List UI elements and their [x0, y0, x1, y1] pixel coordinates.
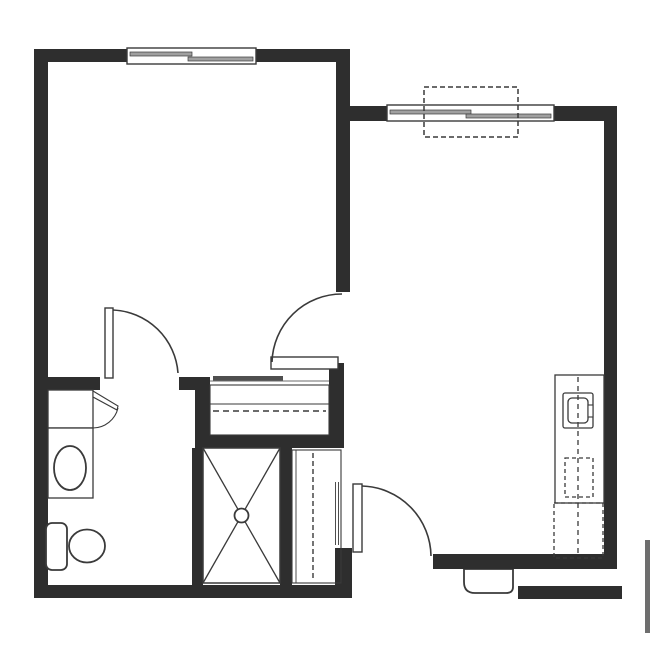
wall-bedroom-top-right	[256, 49, 350, 62]
wall-left	[34, 49, 48, 598]
wall-bottom-left	[34, 585, 347, 598]
wall-shower-right	[280, 448, 292, 585]
living-window-pane-left	[390, 110, 471, 114]
bedroom-window-pane-left	[130, 52, 192, 56]
bathroom-door-leaf	[105, 308, 113, 378]
shower-drain	[235, 509, 249, 523]
floor-plan-svg	[0, 0, 650, 650]
entry-door-swing-arc	[362, 486, 431, 556]
bathroom-door-swing-arc	[113, 310, 178, 373]
linen-cabinet	[48, 390, 93, 428]
closet-interior	[210, 385, 329, 435]
wall-closet-right	[329, 363, 344, 448]
wall-living-top-left	[336, 106, 387, 121]
entry-threshold	[464, 569, 513, 593]
corridor-edge-bar	[645, 540, 650, 633]
closet-slider-panel	[213, 376, 283, 381]
bedroom-door-leaf	[271, 357, 338, 369]
wall-living-bottom	[433, 554, 617, 569]
living-window-pane-right	[466, 114, 551, 118]
wall-living-right	[604, 106, 617, 569]
wall-corridor	[518, 586, 622, 599]
wall-shower-left	[192, 448, 203, 585]
wall-entry-stub	[335, 548, 352, 598]
toilet-bowl	[69, 530, 105, 563]
toilet-tank	[46, 523, 67, 570]
cabinet-door-wedge	[93, 391, 118, 410]
bedroom-window-pane-right	[188, 57, 253, 61]
utility-chase-outline	[292, 450, 341, 583]
bedroom-door-swing-arc	[272, 294, 342, 362]
cabinet-door-swing-arc	[93, 408, 118, 428]
vanity-sink	[54, 446, 86, 490]
wall-bedroom-right	[336, 49, 350, 292]
wall-bath-left-segment	[48, 377, 100, 390]
entry-door-leaf	[353, 484, 362, 552]
wall-closet-bottom	[195, 435, 344, 448]
kitchen-faucet	[588, 405, 593, 417]
floor-plan	[0, 0, 650, 650]
